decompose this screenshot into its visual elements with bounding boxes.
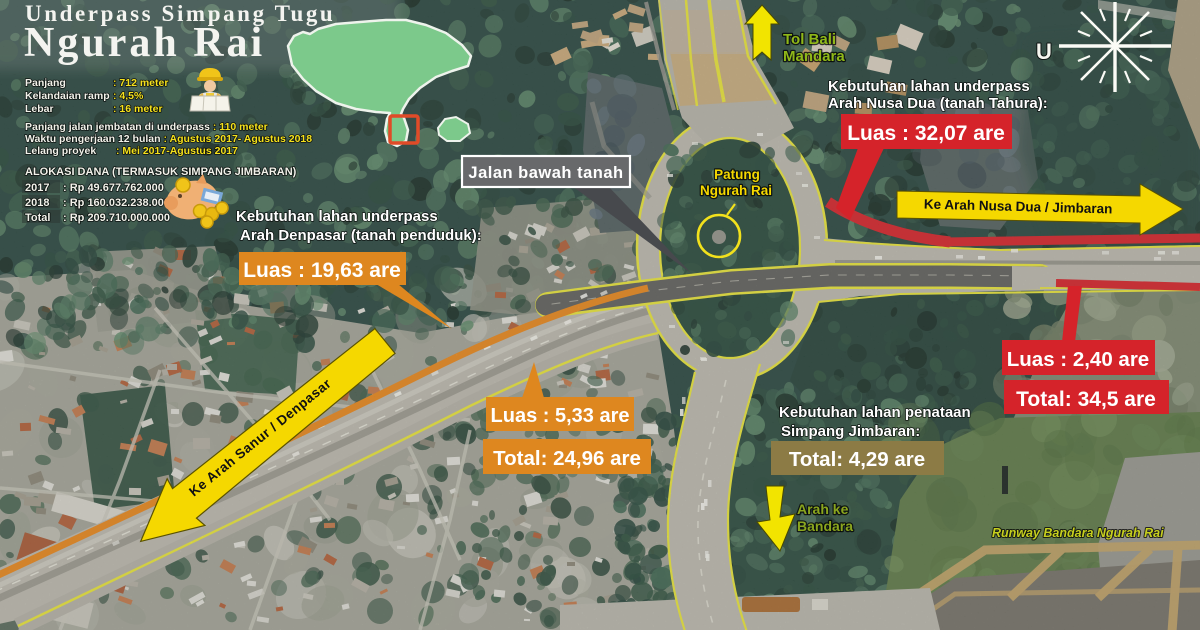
svg-text:Ngurah Rai: Ngurah Rai [700, 183, 772, 198]
svg-text:Luas : 2,40 are: Luas : 2,40 are [1007, 348, 1149, 371]
svg-text:Luas : 19,63 are: Luas : 19,63 are [243, 259, 401, 282]
svg-text:Arah ke: Arah ke [797, 501, 849, 517]
svg-text:2018: 2018 [25, 197, 49, 209]
svg-text:Runway Bandara Ngurah Rai: Runway Bandara Ngurah Rai [992, 526, 1164, 540]
svg-text:Jalan bawah tanah: Jalan bawah tanah [468, 164, 623, 182]
svg-text:Luas : 5,33 are: Luas : 5,33 are [491, 405, 630, 427]
svg-text:: Rp 49.677.762.000: : Rp 49.677.762.000 [63, 182, 164, 194]
svg-text:Ngurah Rai: Ngurah Rai [24, 20, 265, 66]
svg-text:Total: 4,29 are: Total: 4,29 are [789, 448, 925, 471]
svg-text:Waktu pengerjaan 12 bulan : Ag: Waktu pengerjaan 12 bulan : Agustus 2017… [25, 133, 312, 145]
svg-text:Lebar: Lebar [25, 103, 54, 115]
svg-text:Kelandaian ramp: Kelandaian ramp [25, 90, 110, 102]
svg-text:: 712 meter: : 712 meter [113, 77, 168, 89]
svg-text:Kebutuhan lahan underpass: Kebutuhan lahan underpass [236, 208, 438, 225]
svg-text:Simpang Jimbaran:: Simpang Jimbaran: [781, 423, 920, 440]
svg-text:Arah Nusa Dua (tanah Tahura):: Arah Nusa Dua (tanah Tahura): [828, 95, 1048, 112]
svg-text:Total: 34,5 are: Total: 34,5 are [1016, 388, 1156, 411]
svg-text:ALOKASI DANA (TERMASUK SIMPANG: ALOKASI DANA (TERMASUK SIMPANG JIMBARAN) [25, 166, 297, 178]
svg-text:Kebutuhan lahan underpass: Kebutuhan lahan underpass [828, 78, 1030, 95]
svg-text:: 4,5%: : 4,5% [113, 90, 144, 102]
svg-text:Panjang: Panjang [25, 77, 66, 89]
svg-text:2017: 2017 [25, 182, 49, 194]
svg-text:: Rp 160.032.238.000: : Rp 160.032.238.000 [63, 197, 170, 209]
svg-text:Luas : 32,07 are: Luas : 32,07 are [847, 122, 1005, 145]
svg-text:Panjang jalan jembatan di unde: Panjang jalan jembatan di underpass : 11… [25, 121, 268, 133]
svg-text:Total: Total [25, 212, 50, 224]
svg-text:Kebutuhan lahan penataan: Kebutuhan lahan penataan [779, 404, 971, 421]
svg-text:Tol Bali: Tol Bali [783, 31, 836, 48]
svg-text:Arah Denpasar (tanah penduduk): Arah Denpasar (tanah penduduk): [240, 227, 482, 244]
svg-text:U: U [1036, 39, 1052, 64]
svg-text:Mandara: Mandara [783, 48, 845, 65]
svg-text:: Rp 209.710.000.000: : Rp 209.710.000.000 [63, 212, 170, 224]
svg-text:Bandara: Bandara [797, 518, 853, 534]
svg-text:Total: 24,96 are: Total: 24,96 are [493, 447, 641, 470]
svg-text:: 16 meter: : 16 meter [113, 103, 163, 115]
svg-text:Patung: Patung [714, 167, 760, 182]
svg-text:Lelang proyek : Mei 2017-Agust: Lelang proyek : Mei 2017-Agustus 2017 [25, 145, 238, 157]
